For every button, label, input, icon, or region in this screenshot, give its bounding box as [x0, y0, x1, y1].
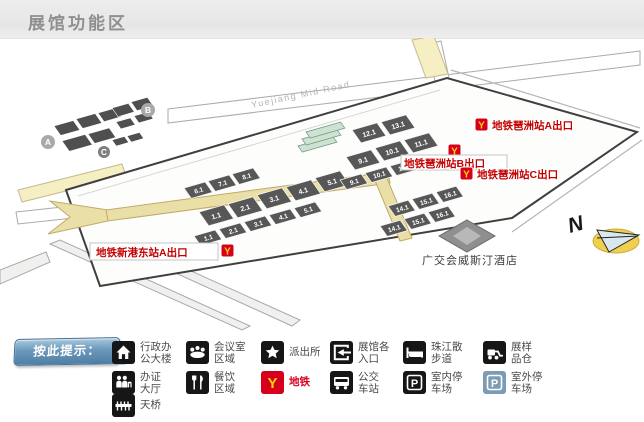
- legend-label: 展馆各: [358, 342, 390, 354]
- legend-label: 地铁: [289, 371, 310, 394]
- police-star-icon: [261, 341, 284, 364]
- admin-building-icon: [112, 341, 135, 364]
- area-c-letter: C: [101, 147, 107, 157]
- meeting-room-icon: [186, 341, 209, 364]
- badge-hall-icon: [112, 371, 135, 394]
- metro-icon: [221, 244, 234, 258]
- legend-item-dining-area: 餐饮区域: [186, 371, 235, 395]
- legend-label: 入口: [358, 354, 390, 366]
- legend-label: 会议室: [214, 342, 246, 354]
- metro-icon: [460, 167, 473, 181]
- area-b-letter: B: [145, 105, 151, 115]
- legend-item-bus-station: 公交车站: [330, 371, 379, 395]
- legend-label: 品仓: [511, 354, 532, 366]
- legend-item-police-station: 派出所: [261, 341, 321, 364]
- parking-letter: P: [491, 378, 498, 390]
- page-title: 展馆功能区: [28, 9, 128, 34]
- legend-label: 车场: [511, 384, 543, 396]
- metro-exit-pazhou-c: 地铁琶洲站C出口: [477, 168, 558, 181]
- legend-item-metro: Y 地铁: [261, 371, 310, 394]
- bus-icon: [330, 371, 353, 394]
- inset-building: [116, 118, 135, 129]
- legend-hint-button[interactable]: 按此提示：: [13, 337, 121, 366]
- metro-icon: [475, 118, 488, 132]
- legend-item-badge-hall: 办证大厅: [112, 371, 161, 395]
- area-a-letter: A: [45, 137, 51, 147]
- metro-exit-pazhou-a: 地铁琶洲站A出口: [492, 119, 573, 132]
- legend-label: 展样: [511, 342, 532, 354]
- metro-logo-letter: Y: [267, 375, 277, 392]
- legend-label: 步道: [431, 354, 463, 366]
- entrance-icon: [330, 341, 353, 364]
- hotel-label: 广交会威斯汀酒店: [422, 253, 518, 267]
- legend-label: 区域: [214, 384, 235, 396]
- compass: N: [565, 211, 639, 253]
- yellow-road-north: [412, 38, 448, 78]
- legend-label: 餐饮: [214, 372, 235, 384]
- legend-item-outdoor-parking: P 室外停车场: [483, 371, 543, 395]
- legend-label: 车站: [358, 384, 379, 396]
- promenade-icon: [403, 341, 426, 364]
- legend-item-promenade: 珠江散步道: [403, 341, 463, 365]
- outdoor-parking-icon: P: [483, 371, 506, 394]
- legend-item-footbridge: 天桥: [112, 394, 161, 417]
- legend-item-indoor-parking: P 室内停车场: [403, 371, 463, 395]
- legend-label: 行政办: [140, 342, 172, 354]
- southwest-road-3: [0, 252, 50, 284]
- legend-label: 室内停: [431, 372, 463, 384]
- fork-knife-icon: [186, 371, 209, 394]
- area-inset: A B C: [41, 97, 155, 158]
- legend-label: 办证: [140, 372, 161, 384]
- legend-item-sample-warehouse: 展样品仓: [483, 341, 532, 365]
- page-header: 展馆功能区: [0, 0, 644, 39]
- metro-exit-xingangdong-a: 地铁新港东站A出口: [96, 246, 188, 259]
- inset-building: [127, 132, 144, 142]
- metro-icon: Y: [261, 371, 284, 394]
- legend-label: 公交: [358, 372, 379, 384]
- legend-label: 公大楼: [140, 354, 172, 366]
- inset-building: [76, 113, 102, 128]
- forklift-icon: [483, 341, 506, 364]
- legend-label: 车场: [431, 384, 463, 396]
- legend-label: 区域: [214, 354, 246, 366]
- legend-item-meeting-room: 会议室区域: [186, 341, 246, 365]
- venue-map-svg: Y Yuejiang Mid Road 6.1 7.1 8.1 1.1 2.1 …: [0, 38, 644, 332]
- footbridge-icon: [112, 394, 135, 417]
- inset-building: [62, 134, 92, 151]
- parking-letter: P: [411, 378, 418, 390]
- legend-label: 室外停: [511, 372, 543, 384]
- map-legend: 按此提示： 行政办公大楼 会议室区域 派出所 展馆各入口 珠江散步道 展样品仓 …: [0, 332, 644, 410]
- inset-building: [54, 120, 80, 135]
- legend-item-hall-entrances: 展馆各入口: [330, 341, 390, 365]
- legend-label: 珠江散: [431, 342, 463, 354]
- compass-n-label: N: [565, 211, 586, 237]
- legend-label: 天桥: [140, 394, 161, 417]
- indoor-parking-icon: P: [403, 371, 426, 394]
- legend-item-admin-building: 行政办公大楼: [112, 341, 172, 365]
- venue-map: Y Yuejiang Mid Road 6.1 7.1 8.1 1.1 2.1 …: [0, 38, 644, 332]
- inset-building: [88, 128, 116, 144]
- legend-label: 派出所: [289, 341, 321, 364]
